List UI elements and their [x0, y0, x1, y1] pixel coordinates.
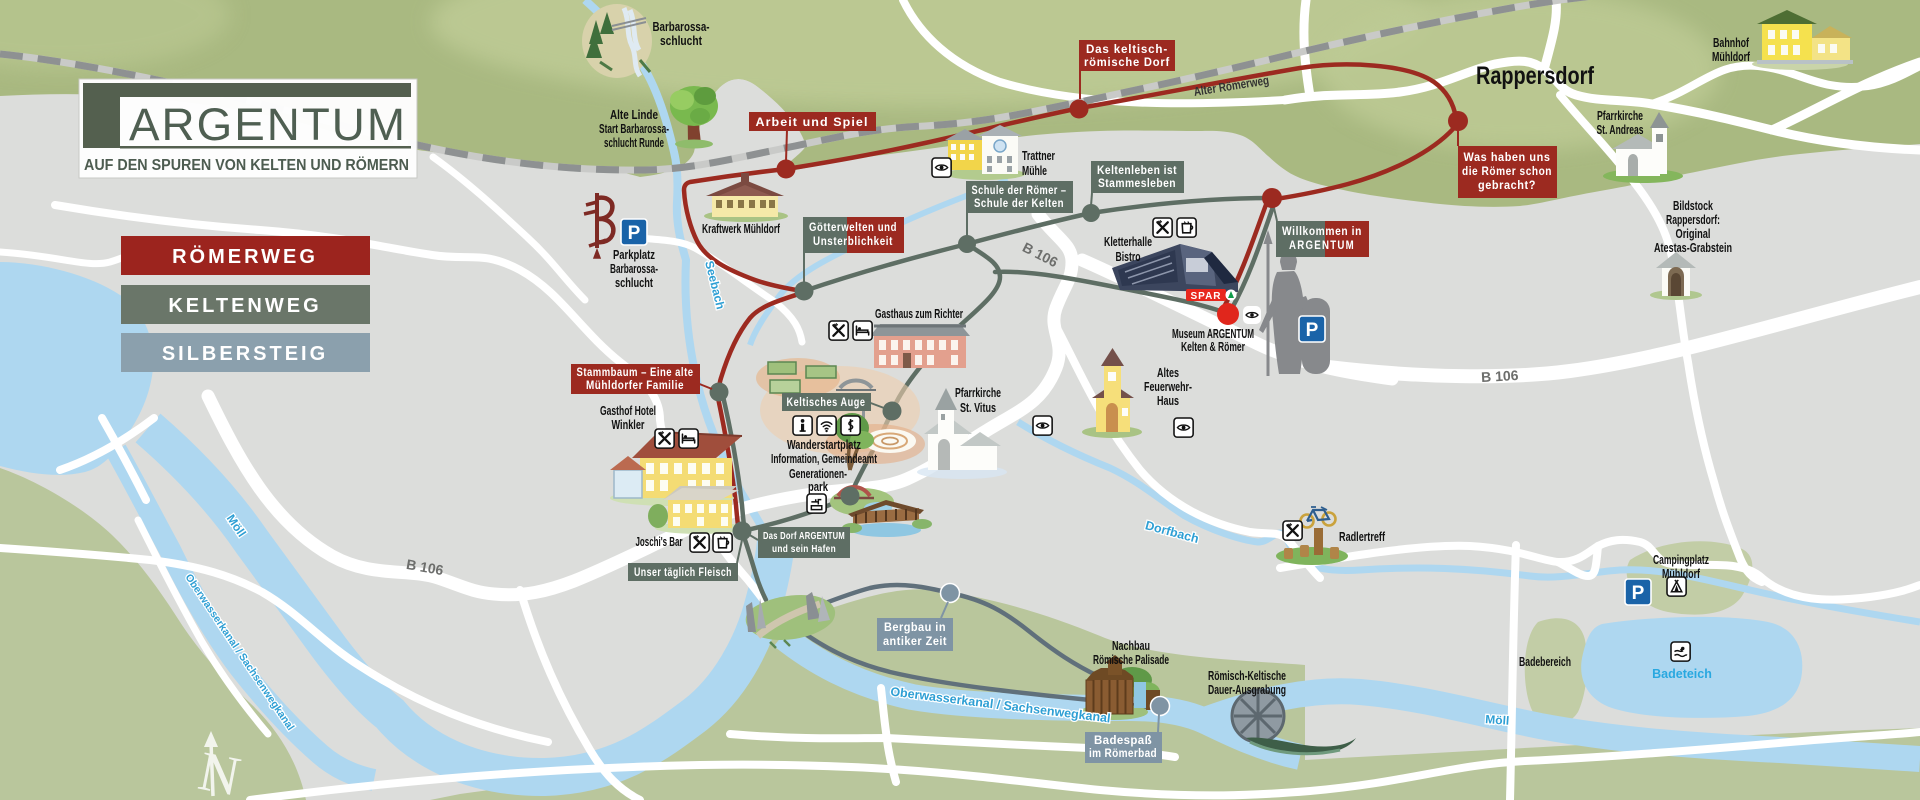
svg-text:AUF DEN SPUREN VON KELTEN UND: AUF DEN SPUREN VON KELTEN UND RÖMERN	[84, 157, 409, 174]
svg-text:Alte Linde: Alte Linde	[610, 108, 658, 122]
svg-text:Wanderstartplatz: Wanderstartplatz	[787, 438, 861, 452]
svg-text:Pfarrkirche: Pfarrkirche	[1597, 109, 1643, 123]
svg-text:Bergbau in: Bergbau in	[884, 622, 946, 634]
svg-text:Original: Original	[1676, 227, 1711, 241]
svg-text:Radlertreff: Radlertreff	[1339, 530, 1386, 544]
svg-text:Bildstock: Bildstock	[1673, 199, 1713, 213]
svg-text:die Römer schon: die Römer schon	[1462, 166, 1552, 178]
svg-text:Feuerwehr-: Feuerwehr-	[1144, 380, 1192, 394]
svg-text:Das Dorf ARGENTUM: Das Dorf ARGENTUM	[763, 530, 845, 542]
svg-text:Schule der Kelten: Schule der Kelten	[974, 198, 1064, 210]
svg-text:Haus: Haus	[1157, 394, 1179, 408]
svg-text:Willkommen in: Willkommen in	[1282, 226, 1362, 238]
svg-text:Mühle: Mühle	[1022, 164, 1047, 178]
svg-text:Unser täglich Fleisch: Unser täglich Fleisch	[634, 567, 732, 579]
svg-text:römische Dorf: römische Dorf	[1084, 57, 1170, 69]
svg-text:Campingplatz: Campingplatz	[1653, 553, 1709, 567]
svg-text:KELTENWEG: KELTENWEG	[168, 295, 321, 317]
svg-text:SILBERSTEIG: SILBERSTEIG	[162, 343, 328, 365]
svg-text:Römisch-Keltische: Römisch-Keltische	[1208, 669, 1286, 683]
svg-text:Römische Palisade: Römische Palisade	[1093, 653, 1169, 667]
svg-text:und sein Hafen: und sein Hafen	[772, 543, 836, 555]
svg-text:Generationen-: Generationen-	[789, 467, 847, 481]
svg-text:schlucht Runde: schlucht Runde	[604, 136, 664, 150]
svg-text:gebracht?: gebracht?	[1478, 180, 1536, 192]
svg-text:Bahnhof: Bahnhof	[1713, 36, 1750, 50]
svg-text:Gasthof Hotel: Gasthof Hotel	[600, 404, 656, 418]
svg-text:Nachbau: Nachbau	[1112, 639, 1150, 653]
svg-text:Möll: Möll	[1485, 712, 1510, 728]
svg-text:Altes: Altes	[1157, 366, 1179, 380]
svg-text:Dauer-Ausgrabung: Dauer-Ausgrabung	[1208, 683, 1286, 697]
svg-text:Barbarossa-: Barbarossa-	[653, 20, 710, 34]
svg-text:antiker Zeit: antiker Zeit	[883, 636, 947, 648]
svg-text:Kletterhalle: Kletterhalle	[1104, 235, 1152, 249]
svg-text:Mühldorf: Mühldorf	[1712, 50, 1751, 64]
svg-text:ARGENTUM: ARGENTUM	[129, 99, 407, 150]
svg-text:St. Vitus: St. Vitus	[960, 401, 996, 415]
svg-text:Badespaß: Badespaß	[1094, 735, 1152, 747]
svg-text:Rappersdorf:: Rappersdorf:	[1666, 213, 1720, 227]
svg-text:Museum ARGENTUM: Museum ARGENTUM	[1172, 327, 1254, 341]
svg-text:Kraftwerk Mühldorf: Kraftwerk Mühldorf	[702, 222, 781, 236]
svg-text:Keltenleben ist: Keltenleben ist	[1097, 165, 1177, 177]
svg-text:Gasthaus zum Richter: Gasthaus zum Richter	[875, 307, 963, 321]
svg-text:im Römerbad: im Römerbad	[1089, 748, 1157, 760]
svg-text:ARGENTUM: ARGENTUM	[1289, 240, 1355, 252]
svg-text:Start Barbarossa-: Start Barbarossa-	[599, 122, 669, 136]
svg-text:Arbeit und Spiel: Arbeit und Spiel	[756, 117, 869, 129]
svg-text:Das keltisch-: Das keltisch-	[1086, 44, 1168, 56]
svg-text:Götterwelten und: Götterwelten und	[809, 222, 897, 234]
svg-text:Badeteich: Badeteich	[1652, 667, 1712, 681]
svg-text:RÖMERWEG: RÖMERWEG	[172, 245, 318, 268]
svg-text:St. Andreas: St. Andreas	[1597, 123, 1644, 137]
svg-text:schlucht: schlucht	[660, 34, 703, 48]
svg-text:B 106: B 106	[1481, 367, 1519, 385]
svg-text:Mühldorfer Familie: Mühldorfer Familie	[586, 380, 684, 392]
svg-text:Information, Gemeindeamt: Information, Gemeindeamt	[771, 452, 878, 466]
svg-text:Barbarossa-: Barbarossa-	[610, 262, 658, 276]
svg-text:Keltisches Auge: Keltisches Auge	[787, 397, 866, 409]
svg-text:Badebereich: Badebereich	[1519, 655, 1571, 669]
svg-text:Bistro: Bistro	[1116, 250, 1141, 264]
svg-text:Joschi's Bar: Joschi's Bar	[636, 535, 683, 549]
svg-text:Unsterblichkeit: Unsterblichkeit	[813, 236, 893, 248]
svg-text:Kelten & Römer: Kelten & Römer	[1181, 340, 1245, 354]
svg-text:Stammbaum – Eine alte: Stammbaum – Eine alte	[577, 367, 694, 379]
svg-text:Winkler: Winkler	[612, 418, 645, 432]
svg-text:Rappersdorf: Rappersdorf	[1476, 62, 1595, 90]
svg-text:Trattner: Trattner	[1022, 149, 1055, 163]
svg-text:Schule der Römer –: Schule der Römer –	[972, 185, 1067, 197]
svg-text:Atestas-Grabstein: Atestas-Grabstein	[1654, 241, 1732, 255]
svg-text:SPAR: SPAR	[1190, 291, 1221, 302]
svg-text:Was haben uns: Was haben uns	[1464, 152, 1551, 164]
svg-text:park: park	[808, 480, 828, 494]
svg-text:Stammesleben: Stammesleben	[1098, 178, 1176, 190]
svg-text:schlucht: schlucht	[615, 276, 654, 290]
svg-text:Parkplatz: Parkplatz	[613, 248, 655, 262]
svg-text:Pfarrkirche: Pfarrkirche	[955, 386, 1001, 400]
